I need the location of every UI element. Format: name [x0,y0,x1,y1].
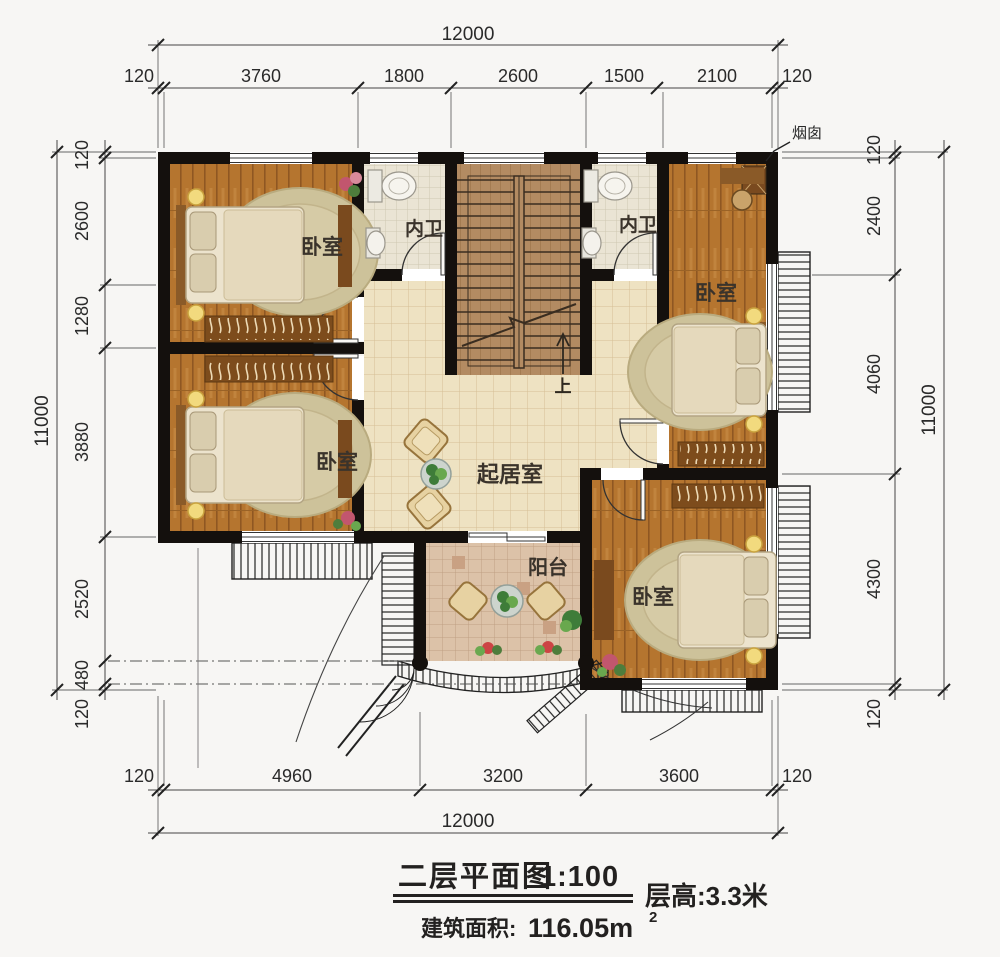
staircase: 上 [457,164,580,396]
window-top-bedroom-right [684,152,740,164]
window-top-stairwell [460,152,548,164]
area-exponent: 2 [649,909,657,926]
dim-right-120-top: 120 [864,135,884,165]
title-underline-1 [393,894,633,897]
area-label: 建筑面积: [421,916,516,941]
dim-top-1800: 1800 [384,66,424,86]
label-bedroom-bottom-left: 卧室 [316,450,358,474]
dim-left-120-bottom: 120 [72,699,92,729]
dim-bottom-3600: 3600 [659,766,699,786]
bedside-lamp [188,189,204,205]
dimension-chain-left: 120 2600 1280 3880 2520 480 120 11000 [32,140,156,729]
floor-plan-drawing: 上 [0,0,1000,957]
dim-left-1280: 1280 [72,296,92,336]
label-balcony: 阳台 [528,555,568,579]
toilet-bath-left [368,170,416,202]
dim-left-total: 11000 [32,395,53,446]
dim-left-2600: 2600 [72,201,92,241]
dimension-chain-right: 120 2400 4060 4300 120 11000 [782,135,950,729]
tv-stand-bedroom-bottom-right [594,560,614,640]
dim-right-4060: 4060 [864,354,884,394]
stair-up-label: 上 [555,377,572,396]
dim-left-480: 480 [72,660,92,690]
title-block: 二层平面图 1:100 层高:3.3米 建筑面积: 116.05m 2 [393,861,768,943]
label-bedroom-top-left: 卧室 [301,235,343,259]
window-top-bath-left [366,152,422,164]
balcony-tile-accent [452,556,465,569]
drawing-scale: 1:100 [540,861,619,893]
dim-top-120-right: 120 [782,66,812,86]
title-underline-2 [393,900,633,903]
bedside-lamp [746,536,762,552]
dim-bottom-120-left: 120 [124,766,154,786]
dresser-stool [732,190,752,210]
bedside-lamp [746,648,762,664]
bedside-lamp [188,503,204,519]
dim-bottom-4960: 4960 [272,766,312,786]
dim-left-120-top: 120 [72,140,92,170]
dim-right-2400: 2400 [864,196,884,236]
dim-top-120-left: 120 [124,66,154,86]
bedside-lamp [188,391,204,407]
window-top-bedroom-left [226,152,316,164]
window-platform-bottom-left [232,543,372,579]
floor-plan-page: 上 [0,0,1000,957]
label-bath-right: 内卫 [619,213,657,236]
bed-top-right [672,308,766,432]
dim-top-2100: 2100 [697,66,737,86]
door-balcony-sliding [468,531,547,543]
area-value: 116.05m [528,913,633,943]
balcony-table [491,585,523,617]
bedside-lamp [188,305,204,321]
bedside-lamp [746,308,762,324]
plant-table-living [421,459,451,489]
dim-right-4300: 4300 [864,559,884,599]
label-bedroom-top-right: 卧室 [695,281,737,305]
drawing-title: 二层平面图 [398,861,553,893]
flower-rack-right-upper [778,252,810,412]
dim-bottom-120-right: 120 [782,766,812,786]
dim-top-3760: 3760 [241,66,281,86]
label-living: 起居室 [476,462,543,487]
window-bottom-left [238,531,358,543]
dresser-bedroom-top-right [720,168,764,184]
bed-bottom-left [176,391,304,519]
floor-height-note: 层高:3.3米 [645,881,768,911]
toilet-bath-right [584,170,632,202]
flower-rack-right-lower [778,486,810,638]
dimension-chain-top: 12000 120 3760 1800 2600 1500 2100 120 [124,24,812,148]
exterior-eave-curve-left [296,556,384,742]
bed-bottom-right [678,536,776,664]
dim-top-total: 12000 [442,24,495,45]
window-bottom-right [638,678,750,690]
railing-bottom-right [622,690,762,712]
dim-right-total: 11000 [919,384,940,435]
bed-top-left [176,189,304,321]
label-bath-left: 内卫 [405,217,443,240]
dimension-chain-bottom: 120 4960 3200 3600 120 12000 [124,696,812,839]
window-top-bath-right [594,152,650,164]
dim-bottom-total: 12000 [442,811,495,832]
label-bedroom-bottom-right: 卧室 [632,585,674,609]
bedside-lamp [746,416,762,432]
exterior-stair-left [382,553,414,665]
dim-left-3880: 3880 [72,422,92,462]
dim-top-2600: 2600 [498,66,538,86]
balcony-tile-accent [543,621,556,634]
dim-right-120-bottom: 120 [864,699,884,729]
label-chimney: 烟囱 [792,125,822,142]
dim-bottom-3200: 3200 [483,766,523,786]
dim-top-1500: 1500 [604,66,644,86]
dim-left-2520: 2520 [72,579,92,619]
